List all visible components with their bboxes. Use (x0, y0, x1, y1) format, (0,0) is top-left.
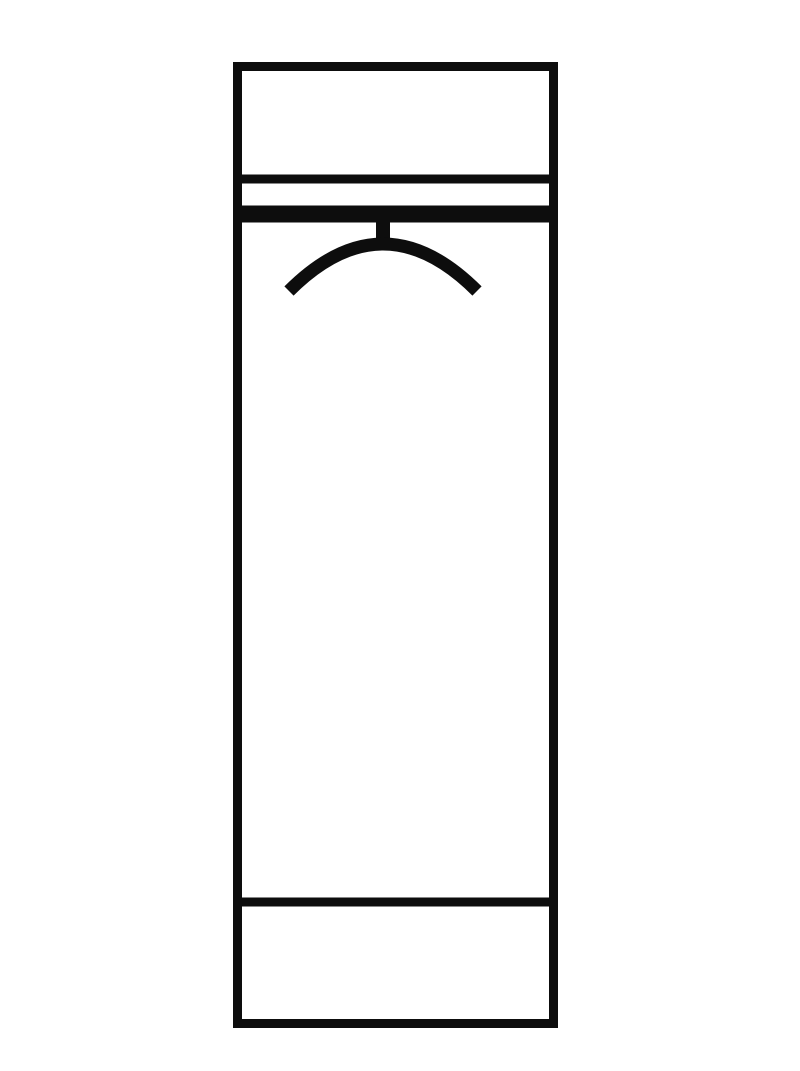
hanger-icon (289, 221, 477, 291)
hanger-arc (289, 244, 477, 291)
schematic-page (0, 0, 800, 1071)
wardrobe-schematic (0, 0, 800, 1071)
